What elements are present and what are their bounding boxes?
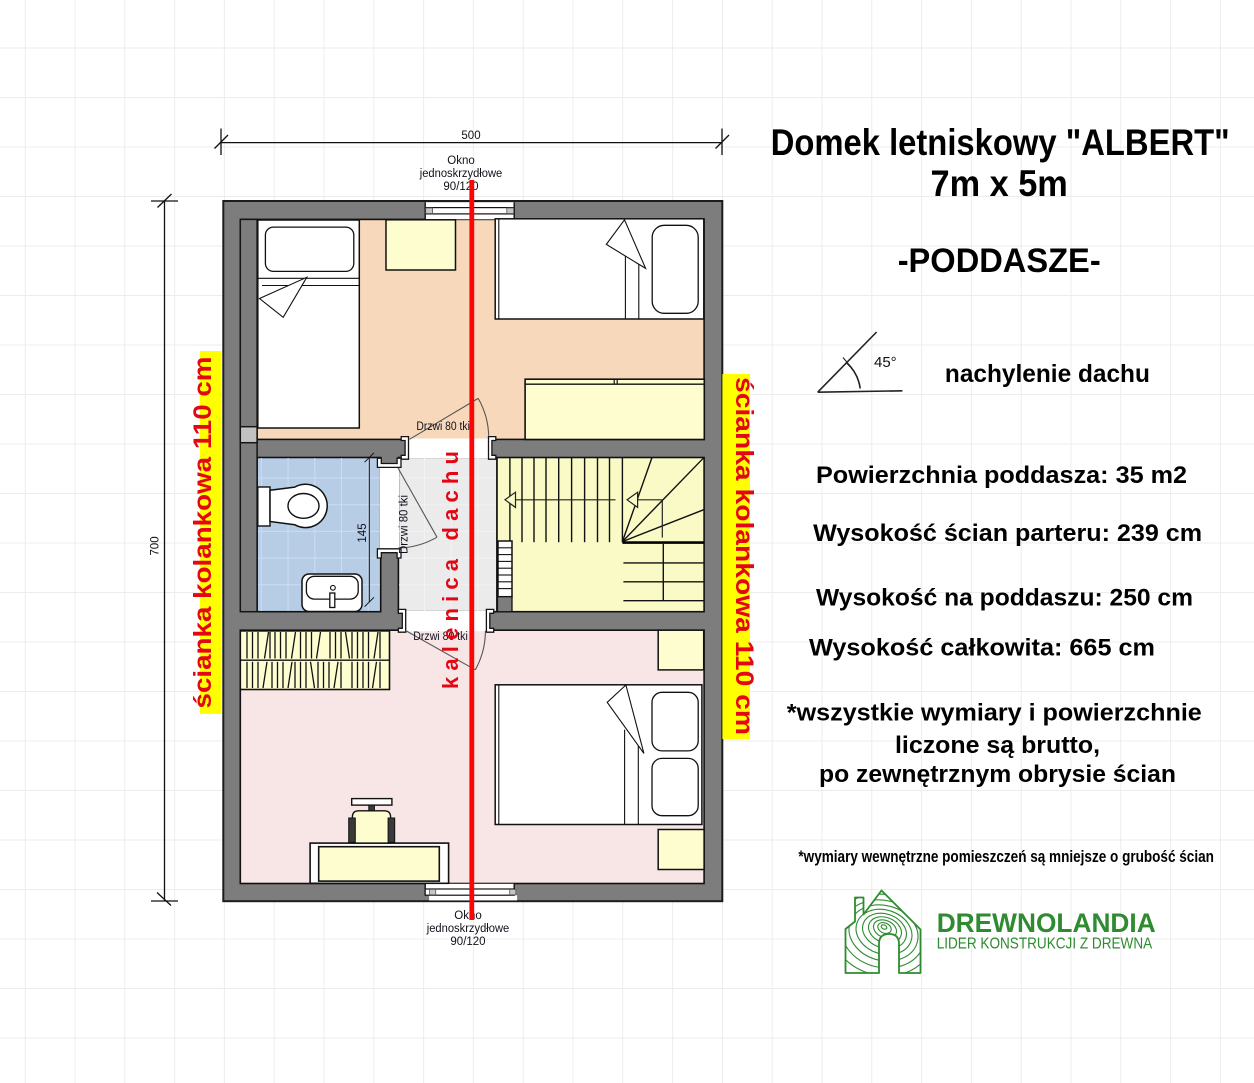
svg-text:DREWNOLANDIA: DREWNOLANDIA [937,908,1156,938]
svg-text:po zewnętrznym obrysie ścian: po zewnętrznym obrysie ścian [819,761,1176,788]
svg-text:Wysokość na poddaszu: 250 cm: Wysokość na poddaszu: 250 cm [816,585,1193,612]
svg-text:ścianka kolankowa 110 cm: ścianka kolankowa 110 cm [189,357,217,709]
svg-text:LIDER KONSTRUKCJI Z DREWNA: LIDER KONSTRUKCJI Z DREWNA [937,936,1153,953]
svg-text:500: 500 [461,130,480,142]
svg-text:45°: 45° [874,354,897,371]
svg-text:ścianka kolankowa 110 cm: ścianka kolankowa 110 cm [730,377,758,735]
svg-text:jednoskrzydłowe: jednoskrzydłowe [419,168,502,180]
svg-text:Drzwi 80 tki: Drzwi 80 tki [399,495,411,554]
svg-text:Okno: Okno [447,155,475,167]
svg-text:Powierzchnia poddasza: 35 m2: Powierzchnia poddasza: 35 m2 [816,462,1187,489]
svg-text:Drzwi 80 tki: Drzwi 80 tki [416,421,470,433]
svg-text:7m x 5m: 7m x 5m [931,163,1068,204]
svg-text:Domek letniskowy "ALBERT": Domek letniskowy "ALBERT" [771,122,1230,163]
svg-text:Wysokość całkowita: 665 cm: Wysokość całkowita: 665 cm [809,635,1155,662]
svg-text:liczone są brutto,: liczone są brutto, [895,732,1100,759]
svg-text:*wymiary wewnętrzne pomieszcze: *wymiary wewnętrzne pomieszczeń są mniej… [798,848,1214,866]
svg-text:145: 145 [357,523,369,542]
svg-text:Okno: Okno [454,910,482,922]
svg-text:90/120: 90/120 [450,936,485,948]
svg-text:*wszystkie wymiary i powierzch: *wszystkie wymiary i powierzchnie [787,700,1202,727]
svg-text:nachylenie dachu: nachylenie dachu [945,360,1150,388]
svg-text:Wysokość ścian parteru: 239 cm: Wysokość ścian parteru: 239 cm [813,520,1202,547]
svg-text:700: 700 [150,536,162,555]
svg-text:-PODDASZE-: -PODDASZE- [898,242,1101,280]
svg-text:jednoskrzydłowe: jednoskrzydłowe [426,923,509,935]
